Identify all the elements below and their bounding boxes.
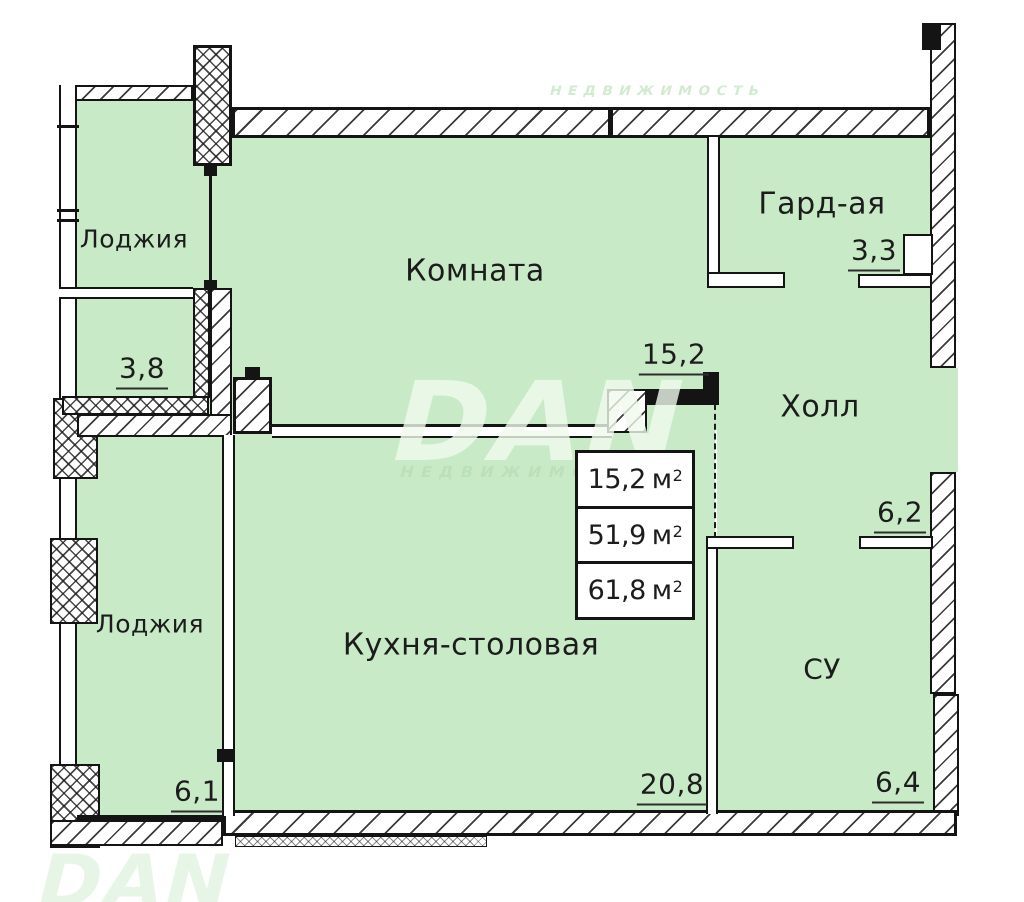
label-loggia-bottom-area: 6,1: [171, 775, 223, 808]
window-tick-3: [57, 219, 79, 222]
wall-right-lower: [933, 694, 959, 816]
area-unit: м: [652, 575, 672, 606]
label-hall: Холл: [780, 390, 859, 425]
watermark-logo-bottom: DAN: [30, 845, 241, 902]
window-tick-1: [57, 125, 79, 128]
duct-shaft: [903, 234, 933, 275]
wall-top-joint-tick: [608, 107, 613, 138]
window-left-38: [59, 299, 77, 399]
floor-plan: Лоджия 3,8 Комната 15,2 Гард-ая 3,3 Холл…: [0, 0, 1024, 902]
area-unit: м: [652, 464, 672, 495]
wall-38-bottom: [62, 396, 209, 415]
window-tick-2: [57, 209, 79, 212]
wall-loggia-top: [73, 85, 193, 101]
glazing-node-1: [204, 164, 217, 176]
room-fill-loggia-top: [77, 100, 209, 288]
area-table-row-total: 61,8м2: [578, 564, 692, 617]
watermark-subtitle-top: НЕДВИЖИМОСТЬ: [548, 84, 767, 99]
label-kitchen: Кухня-столовая: [343, 628, 599, 663]
wall-top-main: [232, 107, 930, 138]
area-table-row-living: 15,2м2: [578, 453, 692, 509]
wall-column-top-left: [193, 45, 232, 166]
glazing-loggia-top-right: [209, 166, 212, 288]
wall-band-mid-left: [77, 414, 232, 437]
wall-pier-left: [50, 538, 98, 624]
label-kitchen-area: 20,8: [637, 768, 707, 801]
wall-right-middle: [930, 472, 956, 694]
label-wardrobe-area: 3,3: [848, 234, 900, 267]
label-room: Комната: [405, 254, 545, 289]
area-unit-sup: 2: [673, 522, 683, 541]
wall-right-upper: [930, 23, 956, 368]
window-left-middle: [59, 479, 77, 538]
wall-right-top-notch: [922, 23, 941, 50]
area-value: 61,8: [588, 575, 646, 606]
window-sill-upper: [59, 287, 193, 299]
wall-bathroom-left: [706, 536, 718, 814]
label-loggia-top-area: 3,8: [116, 352, 168, 385]
boundary-kitchen-hall-dashed: [714, 404, 716, 538]
wall-wardrobe-foot: [707, 272, 785, 288]
wall-column-kitchen: [233, 377, 272, 434]
area-value: 15,2: [588, 464, 646, 495]
wall-wardrobe-left: [707, 137, 720, 288]
label-loggia-top: Лоджия: [80, 225, 188, 254]
window-left-lower: [59, 624, 77, 764]
area-table-row-apartment: 51,9м2: [578, 509, 692, 565]
label-bathroom: СУ: [803, 653, 841, 686]
wall-38-right-inner: [193, 288, 210, 398]
area-table: 15,2м2 51,9м2 61,8м2: [575, 450, 695, 620]
label-loggia-bottom: Лоджия: [96, 610, 204, 639]
area-value: 51,9: [588, 520, 646, 551]
wall-bottom-inner-band: [235, 836, 487, 847]
wall-wardrobe-bottom: [858, 274, 932, 288]
room-fill-entrance: [930, 368, 958, 472]
area-unit-sup: 2: [673, 577, 683, 596]
label-bathroom-area: 6,4: [872, 766, 924, 799]
wall-column-stub: [245, 367, 260, 378]
label-hall-area: 6,2: [874, 496, 926, 529]
glazing-node-3: [217, 749, 235, 762]
area-unit: м: [652, 520, 672, 551]
window-left-upper: [59, 85, 77, 288]
area-unit-sup: 2: [673, 466, 683, 485]
wall-bottom-main: [223, 810, 957, 836]
wall-bathroom-top-left: [706, 536, 794, 549]
label-wardrobe: Гард-ая: [758, 187, 885, 222]
wall-bathroom-top-right: [859, 536, 933, 549]
